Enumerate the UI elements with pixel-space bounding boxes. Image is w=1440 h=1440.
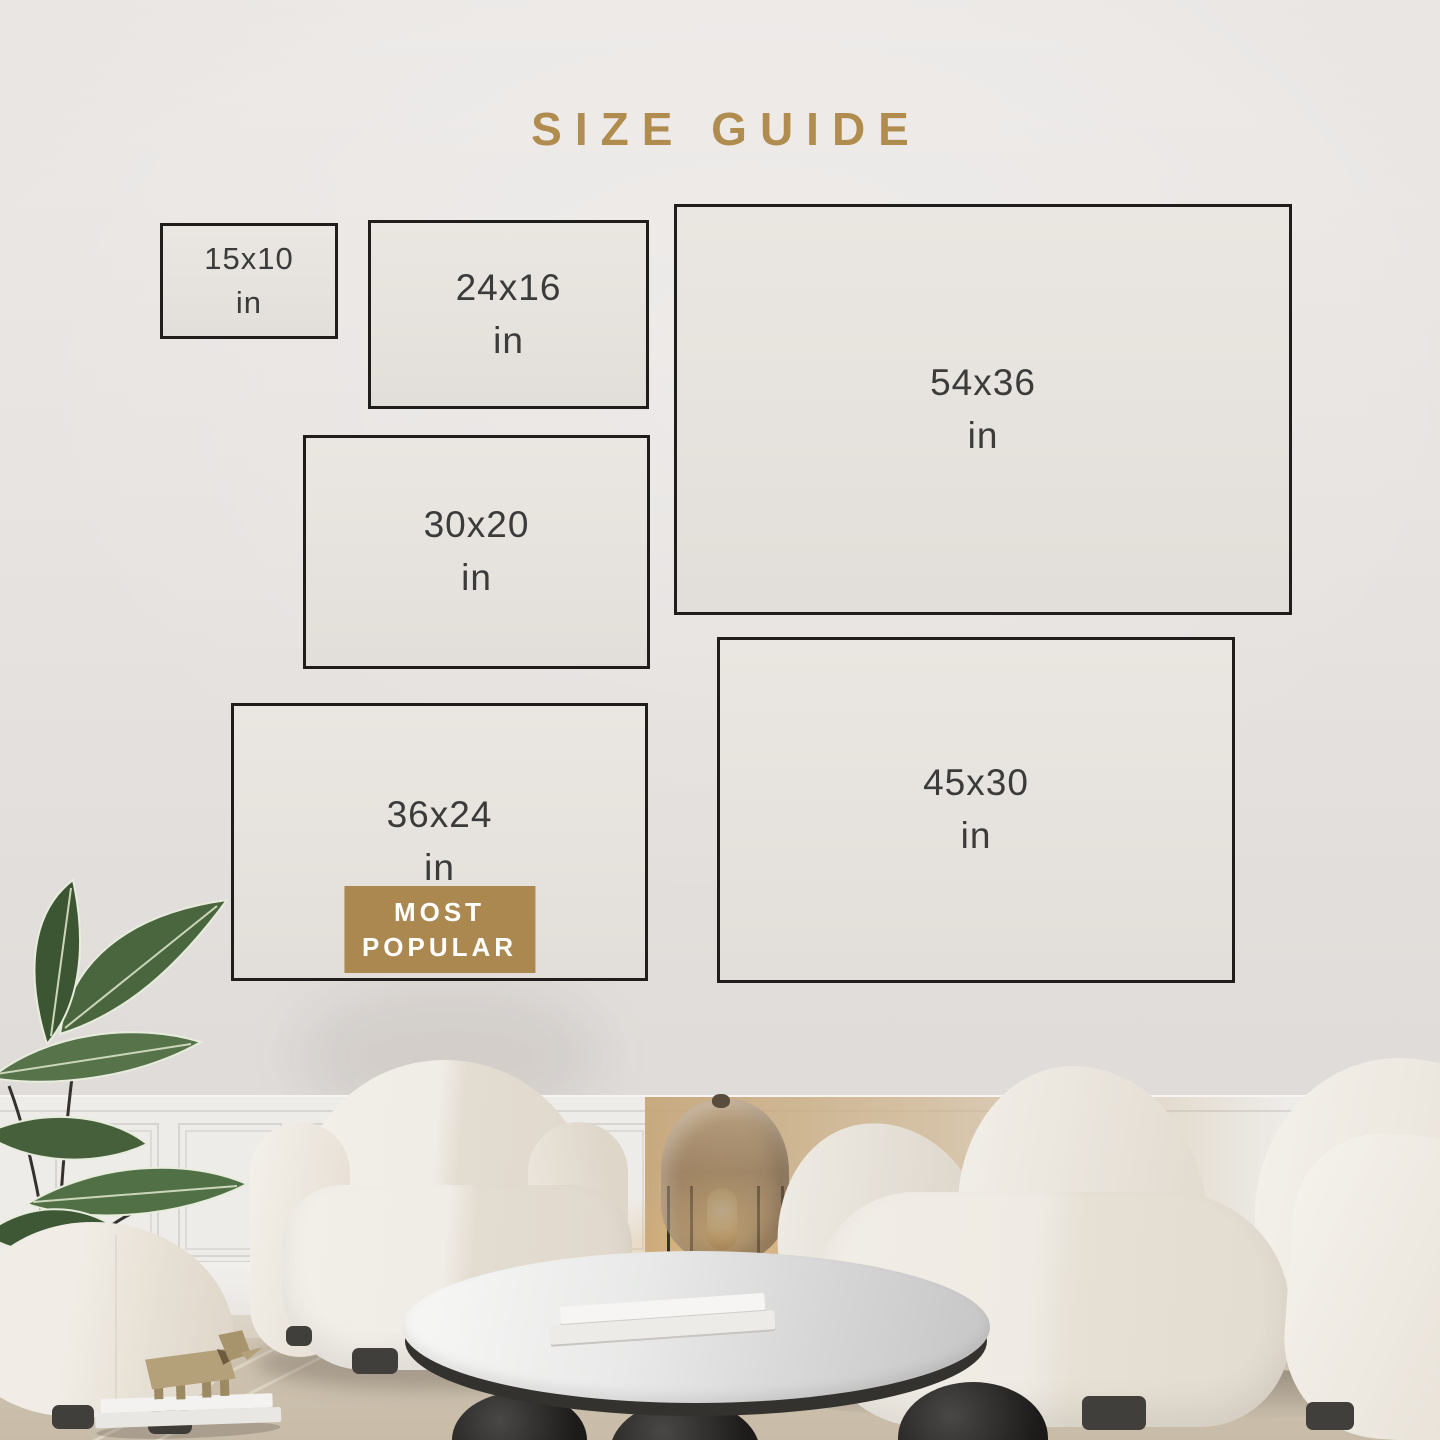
size-dimensions: 30x20 — [424, 499, 530, 552]
size-boxes-container: 15x10 in 24x16 in 54x36 in 30x20 in — [0, 0, 1440, 1440]
size-box-15x10: 15x10 in — [160, 223, 338, 339]
size-label: 36x24 in — [387, 789, 493, 894]
size-guide-poster: SIZE GUIDE 15x10 in 24x16 in 54x36 in 3 — [0, 0, 1440, 1440]
size-dimensions: 54x36 — [930, 357, 1036, 410]
decor-books-and-dog — [90, 1329, 294, 1440]
size-dimensions: 15x10 — [204, 237, 293, 281]
size-unit: in — [456, 315, 562, 368]
badge-line: POPULAR — [362, 930, 517, 964]
size-label: 24x16 in — [456, 262, 562, 367]
size-dimensions: 36x24 — [387, 789, 493, 842]
size-box-24x16: 24x16 in — [368, 220, 649, 409]
badge-line: MOST — [362, 895, 517, 929]
size-unit: in — [923, 810, 1029, 863]
size-box-45x30: 45x30 in — [717, 637, 1235, 983]
size-unit: in — [424, 552, 530, 605]
size-label: 54x36 in — [930, 357, 1036, 462]
size-label: 45x30 in — [923, 757, 1029, 862]
wooden-dog-figurine — [144, 1330, 264, 1401]
size-unit: in — [930, 410, 1036, 463]
size-box-54x36: 54x36 in — [674, 204, 1292, 615]
size-label: 30x20 in — [424, 499, 530, 604]
size-box-30x20: 30x20 in — [303, 435, 650, 669]
size-box-36x24: 36x24 in MOST POPULAR — [231, 703, 648, 981]
size-unit: in — [204, 281, 293, 325]
most-popular-badge: MOST POPULAR — [344, 886, 535, 973]
size-dimensions: 45x30 — [923, 757, 1029, 810]
size-dimensions: 24x16 — [456, 262, 562, 315]
size-label: 15x10 in — [204, 237, 293, 325]
